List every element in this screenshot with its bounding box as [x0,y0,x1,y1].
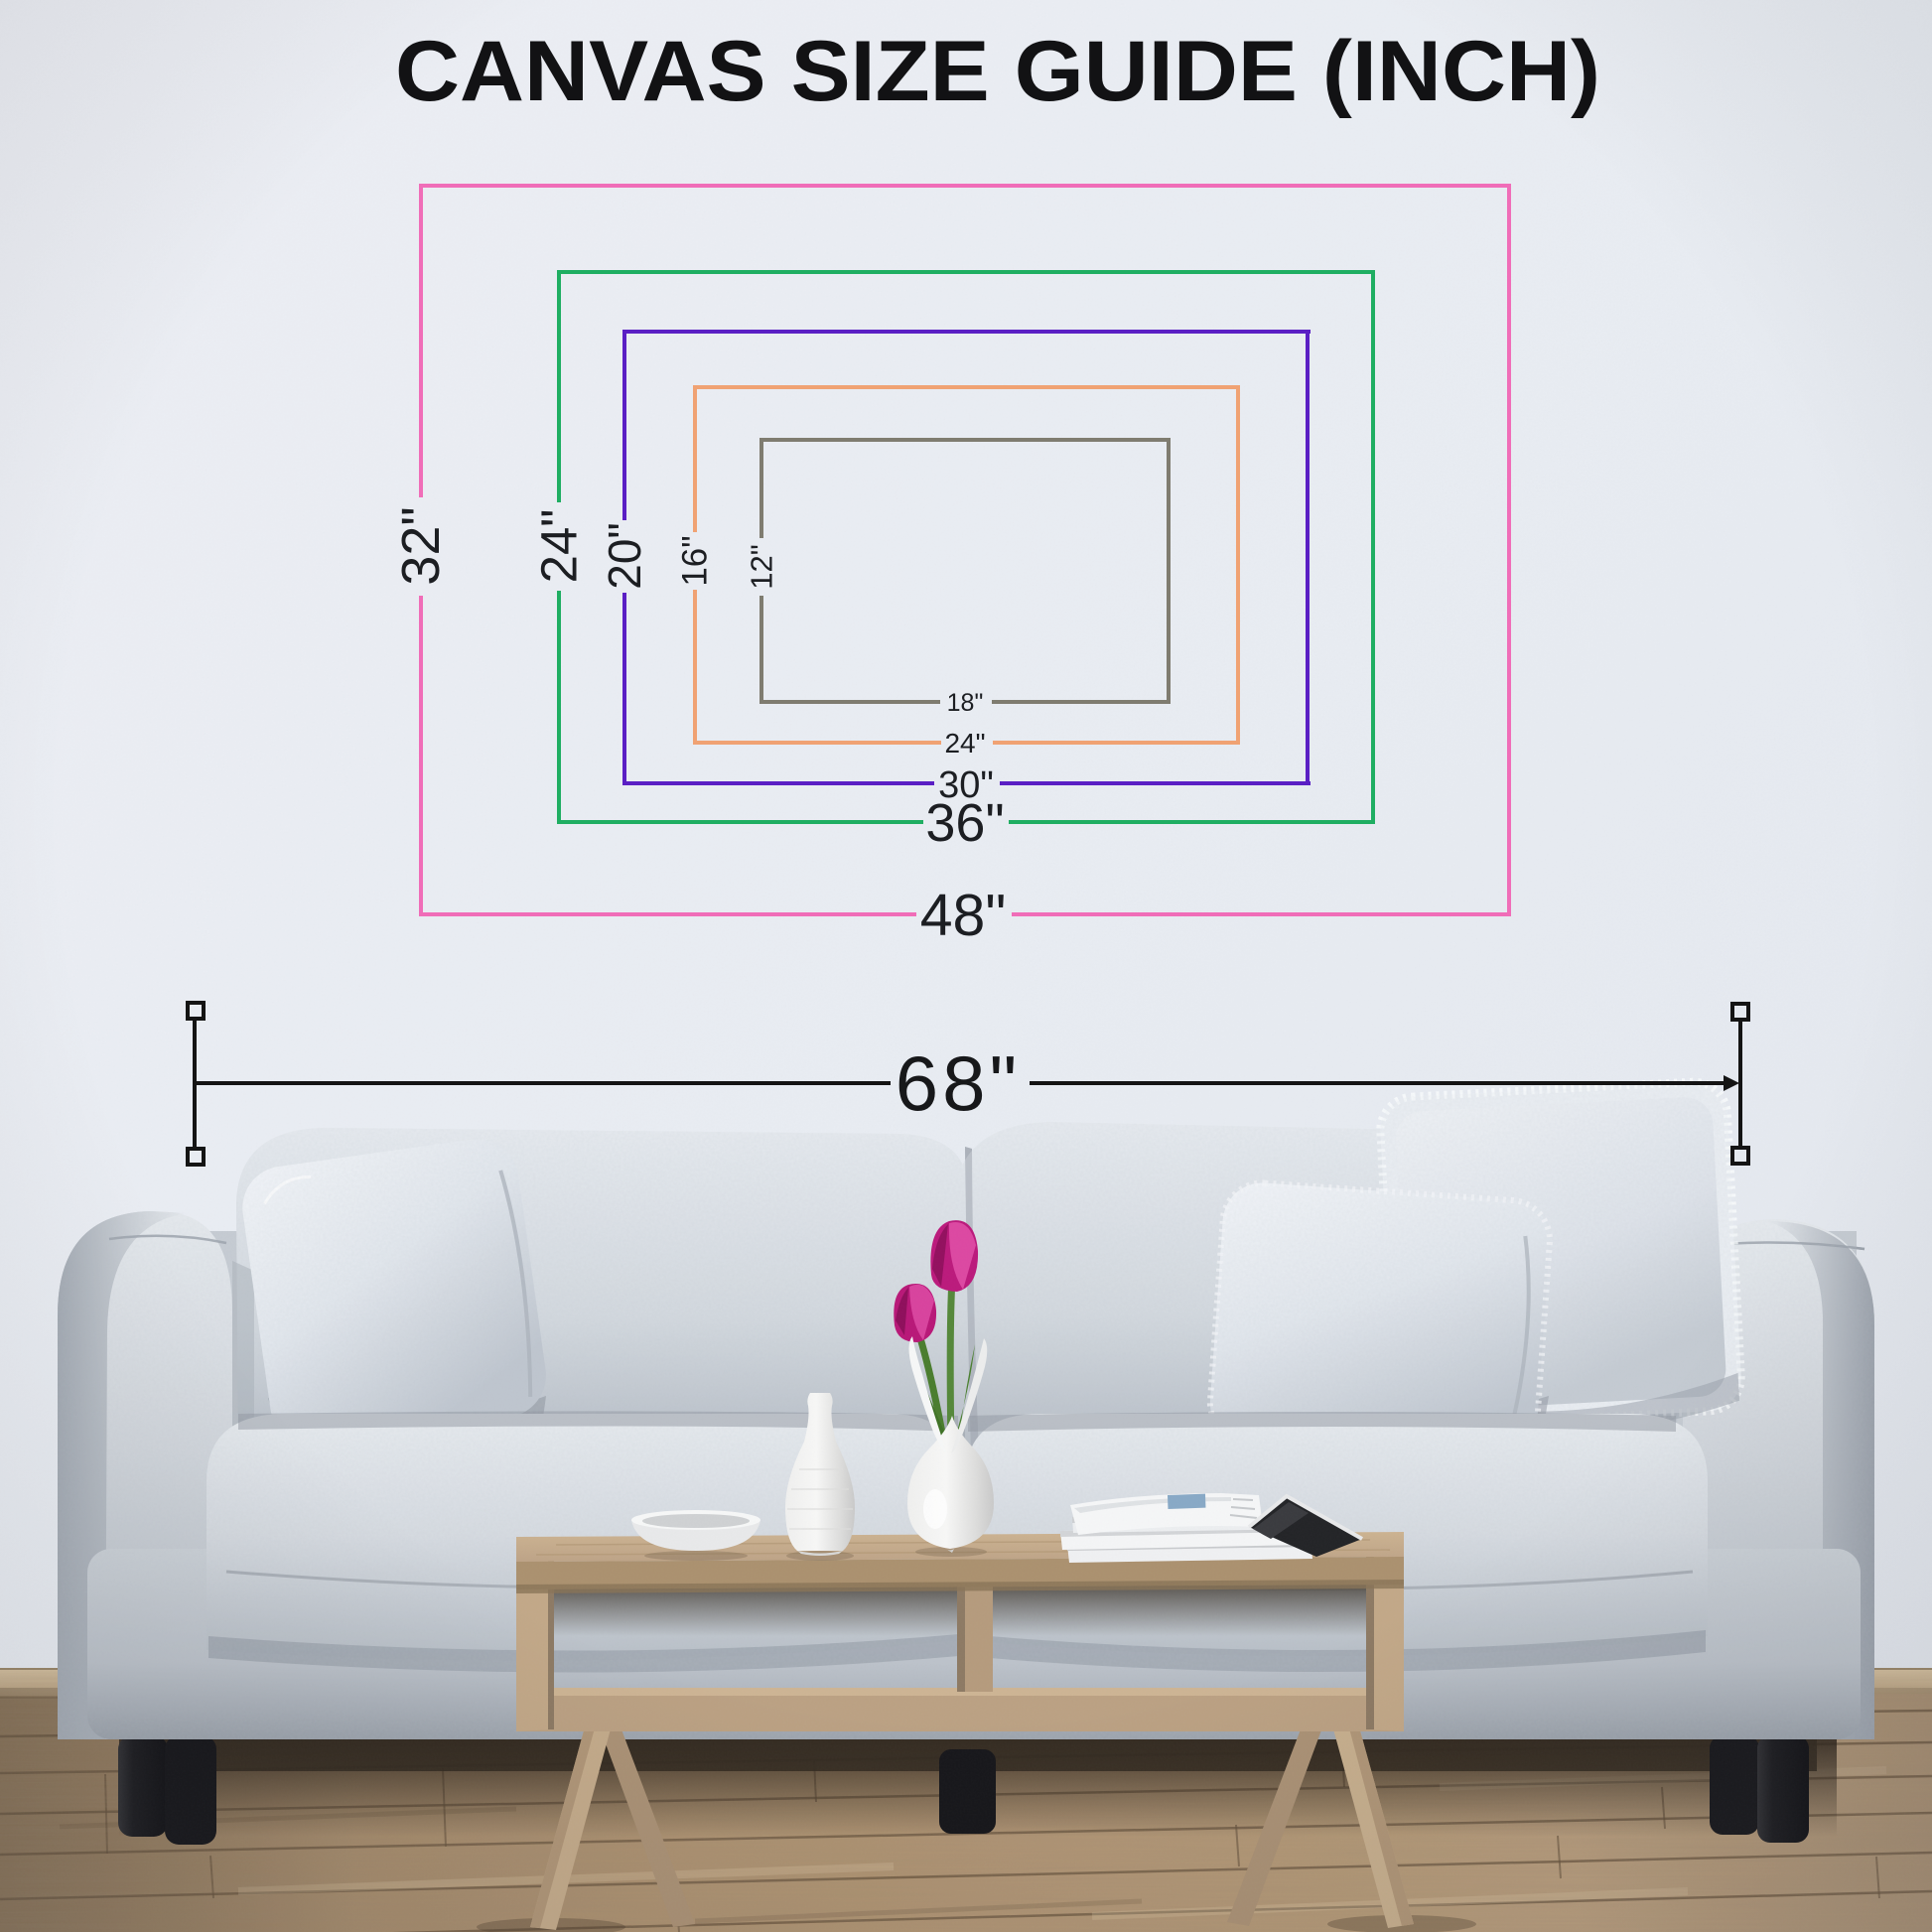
svg-text:32": 32" [391,506,451,585]
svg-text:30": 30" [938,764,994,806]
svg-text:24": 24" [944,728,985,759]
svg-text:16": 16" [676,535,715,586]
svg-text:CANVAS SIZE GUIDE (INCH): CANVAS SIZE GUIDE (INCH) [395,24,1600,119]
svg-text:24": 24" [531,509,588,584]
svg-text:18": 18" [947,689,984,717]
svg-text:48": 48" [920,883,1007,948]
svg-text:68": 68" [896,1039,1021,1127]
svg-text:20": 20" [599,522,650,590]
svg-text:12": 12" [745,544,779,590]
